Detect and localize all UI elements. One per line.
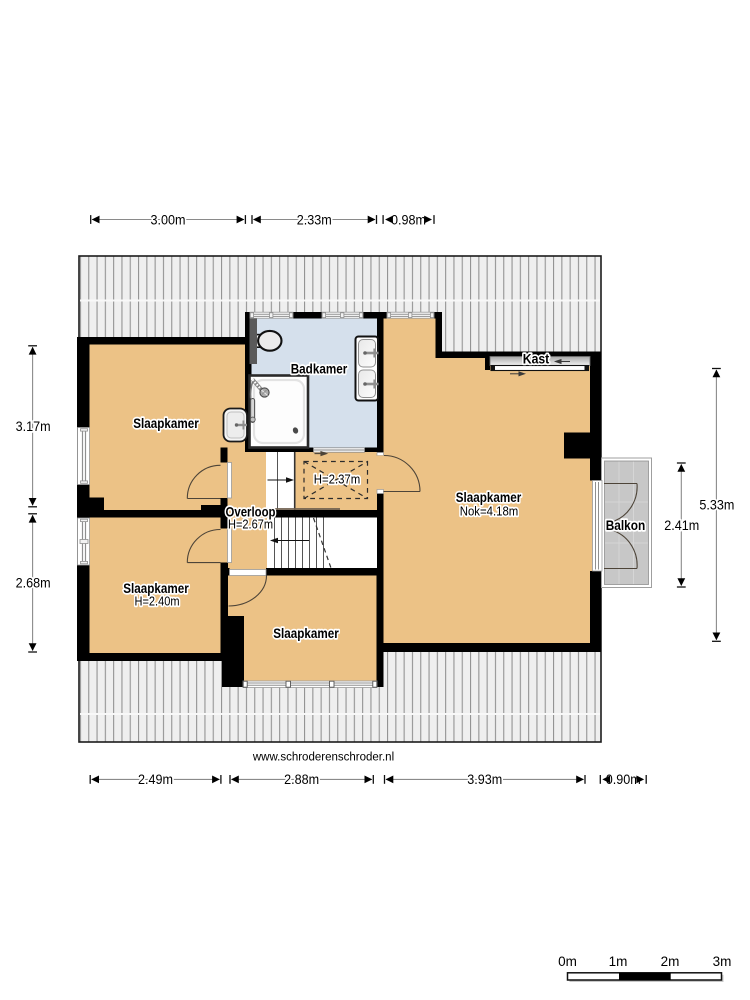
svg-text:Slaapkamer: Slaapkamer (273, 625, 339, 641)
svg-text:0m: 0m (558, 954, 577, 969)
svg-text:2.41m: 2.41m (664, 518, 699, 533)
svg-text:0.90m: 0.90m (606, 772, 641, 787)
svg-text:Balkon: Balkon (606, 517, 646, 533)
svg-text:2m: 2m (661, 954, 680, 969)
svg-text:H=2.37m: H=2.37m (314, 472, 361, 487)
svg-text:Nok=4.18m: Nok=4.18m (460, 503, 519, 518)
svg-text:2.33m: 2.33m (297, 212, 332, 227)
svg-text:3.93m: 3.93m (467, 772, 502, 787)
svg-text:H=2.40m: H=2.40m (135, 593, 180, 608)
svg-text:3m: 3m (713, 954, 732, 969)
svg-text:3.00m: 3.00m (151, 212, 186, 227)
svg-text:5.33m: 5.33m (699, 498, 734, 513)
svg-text:Badkamer: Badkamer (291, 360, 348, 376)
svg-text:Kast: Kast (523, 351, 550, 367)
svg-text:3.17m: 3.17m (16, 419, 51, 434)
svg-text:H=2.67m: H=2.67m (228, 516, 273, 531)
svg-text:0.98m: 0.98m (391, 212, 426, 227)
svg-text:2.68m: 2.68m (16, 576, 51, 591)
svg-text:Slaapkamer: Slaapkamer (133, 415, 199, 431)
svg-text:1m: 1m (609, 954, 628, 969)
svg-text:2.49m: 2.49m (138, 772, 173, 787)
svg-text:2.88m: 2.88m (284, 772, 319, 787)
svg-text:www.schroderenschroder.nl: www.schroderenschroder.nl (252, 752, 394, 764)
